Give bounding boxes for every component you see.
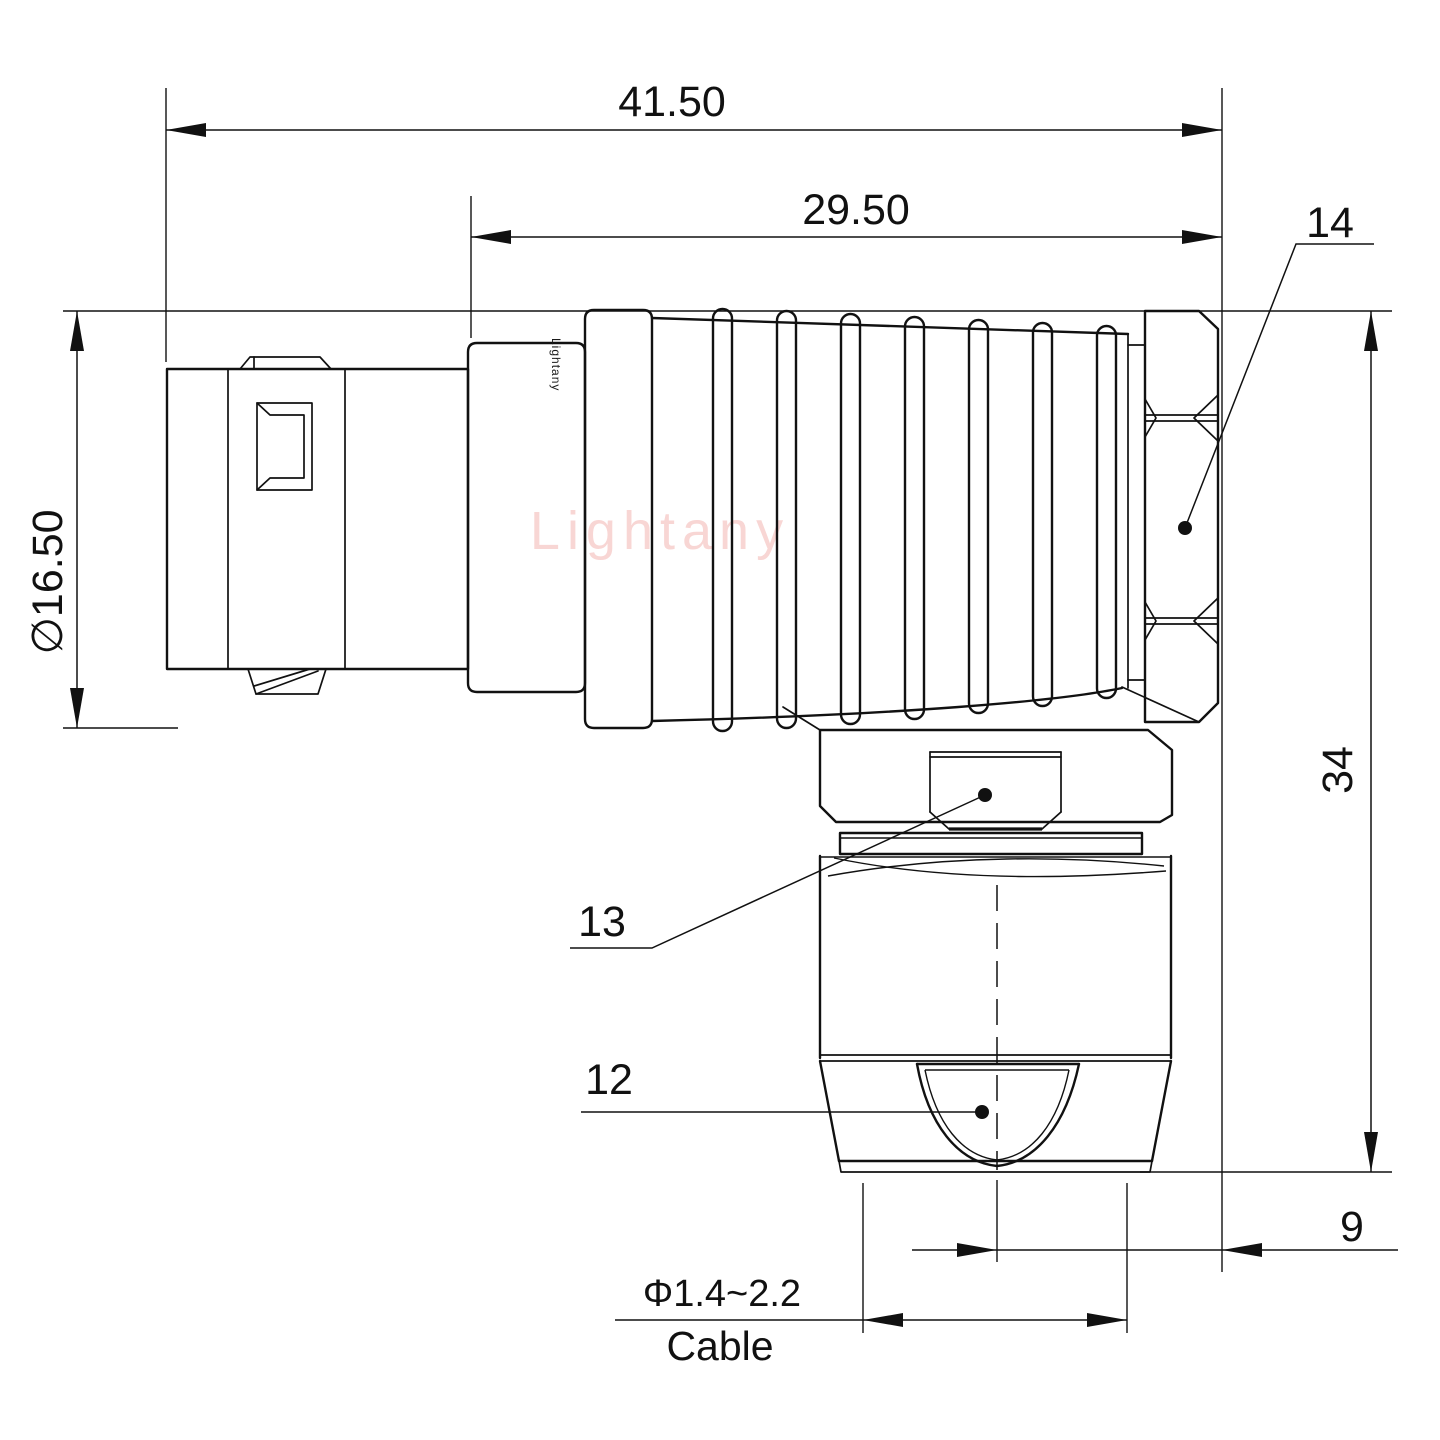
grip-rib-7 (1097, 326, 1116, 698)
back-nut-chevron-left-2 (1145, 602, 1156, 640)
grip-rib-4 (905, 317, 924, 719)
grip-rib-5 (969, 320, 988, 713)
dim-text-front-diameter: ∅16.50 (24, 509, 72, 654)
hex-body-outline (820, 730, 1172, 822)
technical-drawing-page: Lightany 41.50 29.50 ∅16.50 34 (0, 0, 1440, 1440)
thread-curve-2 (834, 858, 1166, 877)
dim-text-cable-word: Cable (666, 1323, 773, 1369)
watermark-text: Lightany (530, 501, 790, 561)
bayonet-window-bevel (257, 403, 304, 490)
hex-flat-top-edges (930, 752, 1061, 757)
front-shell-outline (167, 369, 468, 669)
dim-text-rear-offset: 9 (1340, 1203, 1364, 1251)
dimension-cable-range: Φ1.4~2.2 Cable (615, 1273, 1127, 1369)
hex-flat-sides (930, 752, 1061, 812)
dim-text-cable-range: Φ1.4~2.2 (643, 1273, 801, 1315)
body-engraving-text: Lightany (549, 338, 563, 391)
arrowhead-bottom (1364, 1132, 1378, 1172)
label-cable-clamp: 12 (581, 1056, 989, 1119)
back-nut (1145, 311, 1218, 722)
barrel-split-lines (820, 1055, 1171, 1061)
grip-rib-3 (841, 314, 860, 724)
connector-body: Lightany (167, 309, 1218, 1172)
arrowhead-bottom (70, 688, 84, 728)
arrowhead-right (1222, 1243, 1262, 1257)
leader-line-14 (1185, 244, 1374, 528)
elbow-hex-body (783, 687, 1199, 829)
dimension-front-diameter: ∅16.50 (24, 311, 84, 728)
label-text-back-nut: 14 (1306, 199, 1354, 247)
arrowhead-right (1182, 230, 1222, 244)
leader-dot-13 (978, 788, 992, 802)
gland-section (828, 833, 1166, 877)
hex-to-nut-joint (1122, 687, 1199, 722)
sleeve-top-edge (652, 318, 1128, 334)
arrowhead-right (1182, 123, 1222, 137)
label-back-nut: 14 (1178, 199, 1374, 535)
label-text-hex-body: 13 (578, 898, 626, 946)
arrowhead-left (166, 123, 206, 137)
gland-washer (840, 833, 1142, 854)
dimension-overall-length: 41.50 (166, 78, 1222, 137)
arrowhead-top (70, 311, 84, 351)
hex-flat-chamfers (930, 812, 1061, 829)
sleeve-neck-lines (1128, 345, 1145, 680)
dim-text-overall-length: 41.50 (618, 78, 726, 126)
arrowhead-left (957, 1243, 997, 1257)
back-nut-chevron-right-1 (1194, 395, 1218, 441)
cable-clamp-barrel (820, 856, 1171, 1172)
arrowhead-right (1087, 1313, 1127, 1327)
barrel-sides (820, 856, 1171, 1058)
hex-to-sleeve-joint (783, 707, 820, 730)
leader-dot-14 (1178, 521, 1192, 535)
dimension-overall-height: 34 (1314, 311, 1378, 1172)
grip-rib-6 (1033, 323, 1052, 706)
back-nut-outline (1145, 311, 1218, 722)
dim-text-rear-section-length: 29.50 (802, 186, 910, 234)
leader-dot-12 (975, 1105, 989, 1119)
dimension-rear-offset: 9 (912, 1203, 1398, 1257)
front-shell (167, 357, 468, 694)
reference-lines (63, 88, 1392, 1333)
clamp-taper-sides (820, 1061, 1171, 1161)
thread-curve-1 (828, 859, 1164, 876)
dimension-rear-section-length: 29.50 (471, 186, 1222, 244)
bottom-slot-diagonals (254, 669, 318, 694)
arrowhead-left (863, 1313, 903, 1327)
arrowhead-top (1364, 311, 1378, 351)
connector-dimension-drawing: Lightany 41.50 29.50 ∅16.50 34 (0, 0, 1440, 1440)
dim-text-overall-height: 34 (1314, 746, 1362, 794)
label-hex-body: 13 (570, 788, 992, 948)
label-text-cable-clamp: 12 (585, 1056, 633, 1104)
arrowhead-left (471, 230, 511, 244)
back-nut-chevron-right-2 (1194, 598, 1218, 644)
back-nut-chevron-left-1 (1145, 399, 1156, 437)
